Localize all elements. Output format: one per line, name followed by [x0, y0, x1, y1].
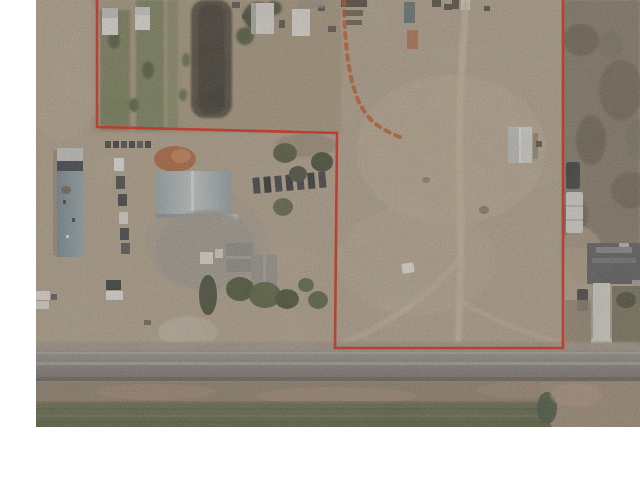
photo-noise-overlay: [36, 0, 640, 427]
aerial-photo: [36, 0, 640, 427]
listing-page: [0, 0, 640, 479]
